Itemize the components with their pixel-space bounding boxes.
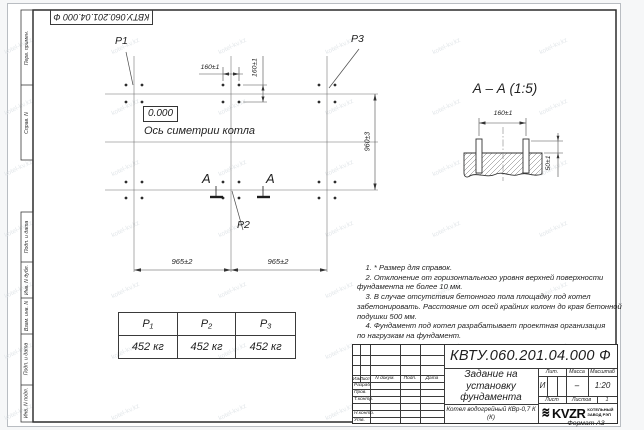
- titleblock-col-podp: Подп.: [400, 376, 420, 381]
- titleblock-mass-value: –: [566, 376, 588, 396]
- note-line: фундамента не более 10 мм.: [357, 282, 463, 291]
- titleblock-line: [400, 345, 401, 423]
- section-cut-marks: [210, 186, 270, 197]
- plan-leader-lines: [126, 49, 359, 230]
- titleblock-line: [547, 376, 548, 396]
- titleblock-mass-label: Масса: [566, 369, 588, 375]
- note-line: 1. * Размер для справок.: [357, 263, 452, 272]
- titleblock-line: [353, 365, 444, 366]
- load-table-header-p2: P₂: [178, 313, 237, 336]
- anchor-bolt-right: [523, 139, 529, 173]
- dim-bolt-spacing-v: 160±1: [252, 54, 263, 82]
- load-table-value-p2: 452 кг: [178, 336, 237, 358]
- load-point-label-p3: P3: [351, 33, 364, 45]
- plan-dimension-lines: [134, 56, 375, 270]
- format-label: Формат А3: [552, 420, 620, 427]
- titleblock-col-ndocum: N докум.: [370, 376, 400, 381]
- titleblock-sheets-value: 1: [597, 397, 617, 403]
- section-letter-right: A: [266, 171, 275, 186]
- note-line: 4. Фундамент под котел разрабатывает про…: [357, 321, 605, 330]
- titleblock-lit-value: И: [538, 376, 547, 396]
- section-view-geometry: [464, 127, 542, 181]
- titleblock-sheets-label: Листов: [566, 397, 597, 403]
- titleblock-row-utv: Утв.: [354, 418, 365, 423]
- symmetry-axis-label: Ось симетрии котла: [144, 125, 255, 137]
- load-table-header-p3: P₃: [236, 313, 295, 336]
- titleblock-col-data: Дата: [420, 376, 444, 381]
- titleblock-line: [353, 417, 444, 418]
- load-point-label-p1: P1: [115, 35, 128, 47]
- kvzr-logo-mark-icon: ≋: [542, 405, 550, 422]
- margin-label-sprav-n: Справ. N: [23, 87, 31, 159]
- titleblock-scale-label: Масштаб: [588, 369, 617, 375]
- margin-label-inv-podl: Инв. N подл.: [23, 386, 31, 421]
- note-line: 2. Отклонение от горизонтального уровня …: [357, 273, 603, 282]
- section-dim-height: 50±1: [545, 151, 555, 175]
- kvzr-logo-subtitle: КОТЕЛЬНЫЙ ЗАВОД РЭП: [587, 408, 613, 418]
- dim-column-span-left: 965±2: [162, 257, 202, 266]
- titleblock-line: [420, 345, 421, 423]
- titleblock-sheet-label: Лист: [538, 397, 566, 403]
- titleblock-doc-title: Задание на установку фундамента: [444, 369, 538, 404]
- margin-label-vzam-inv: Взам. инв. N: [23, 299, 31, 333]
- titleblock-line: [444, 404, 538, 405]
- elevation-mark: 0.000: [143, 106, 178, 122]
- dim-row-spacing: 960±3: [365, 127, 376, 157]
- titleblock-row-nkontr: Н.контр.: [354, 411, 374, 416]
- titleblock-designation: КВТУ.060.201.04.000 Ф: [444, 345, 617, 368]
- load-table: P₁ P₂ P₃ 452 кг 452 кг 452 кг: [118, 312, 296, 359]
- kvzr-logo-text: KVZR: [552, 406, 585, 421]
- section-dim-bolts: 160±1: [488, 110, 518, 117]
- titleblock-line: [353, 403, 444, 404]
- section-letter-left: A: [202, 171, 211, 186]
- plan-anchor-bolts: [125, 84, 337, 200]
- load-table-value-p3: 452 кг: [236, 336, 295, 358]
- titleblock-col-izm: Изм.: [353, 376, 360, 381]
- titleblock-row-prov: Пров.: [354, 390, 367, 395]
- plan-axis-lines: [105, 56, 378, 272]
- titleblock-product-name: Котел водогрейный КВр-0,7 К (К): [444, 406, 538, 423]
- titleblock-scale-value: 1:20: [588, 376, 617, 396]
- titleblock-line: [557, 376, 558, 396]
- anchor-bolt-left: [476, 139, 482, 173]
- top-designation-box: КВТУ.060.201.04.000 Ф: [50, 10, 153, 25]
- margin-label-perv-primen: Перв. примен.: [23, 12, 31, 84]
- title-block: КВТУ.060.201.04.000 Ф Задание на установ…: [352, 344, 618, 424]
- drawing-page: kotel-kv.kzkotel-kv.kzkotel-kv.kzkotel-k…: [0, 0, 644, 430]
- dim-bolt-spacing-h: 160±1: [195, 64, 225, 71]
- margin-label-podp-data-1: Подп. и дата: [23, 213, 31, 261]
- titleblock-row-razrab: Разраб.: [354, 383, 371, 388]
- titleblock-col-list: Лист: [360, 376, 370, 381]
- top-designation-text: КВТУ.060.201.04.000 Ф: [51, 10, 152, 24]
- margin-label-inv-dubl: Инв. N дубл.: [23, 263, 31, 297]
- load-table-header-p1: P₁: [119, 313, 178, 336]
- margin-label-podp-data-2: Подп. и дата: [23, 335, 31, 384]
- note-line: забетонировать. Расстояние от осей крайн…: [357, 302, 622, 311]
- note-line: 3. В случае отсутствия бетонного пола пл…: [357, 292, 591, 301]
- kvzr-logo-subtitle-line2: ЗАВОД РЭП: [587, 413, 613, 418]
- load-point-label-p2: P2: [237, 219, 250, 231]
- dim-column-span-right: 965±2: [258, 257, 298, 266]
- note-line: по нагрузкам на фундамент.: [357, 331, 461, 340]
- titleblock-lit-label: Лит.: [538, 369, 566, 375]
- note-line: подушки 500 мм.: [357, 312, 417, 321]
- titleblock-line: [353, 355, 444, 356]
- section-title: А – А (1:5): [461, 81, 549, 96]
- load-table-value-p1: 452 кг: [119, 336, 178, 358]
- titleblock-row-tkontr: Т.контр.: [354, 397, 373, 402]
